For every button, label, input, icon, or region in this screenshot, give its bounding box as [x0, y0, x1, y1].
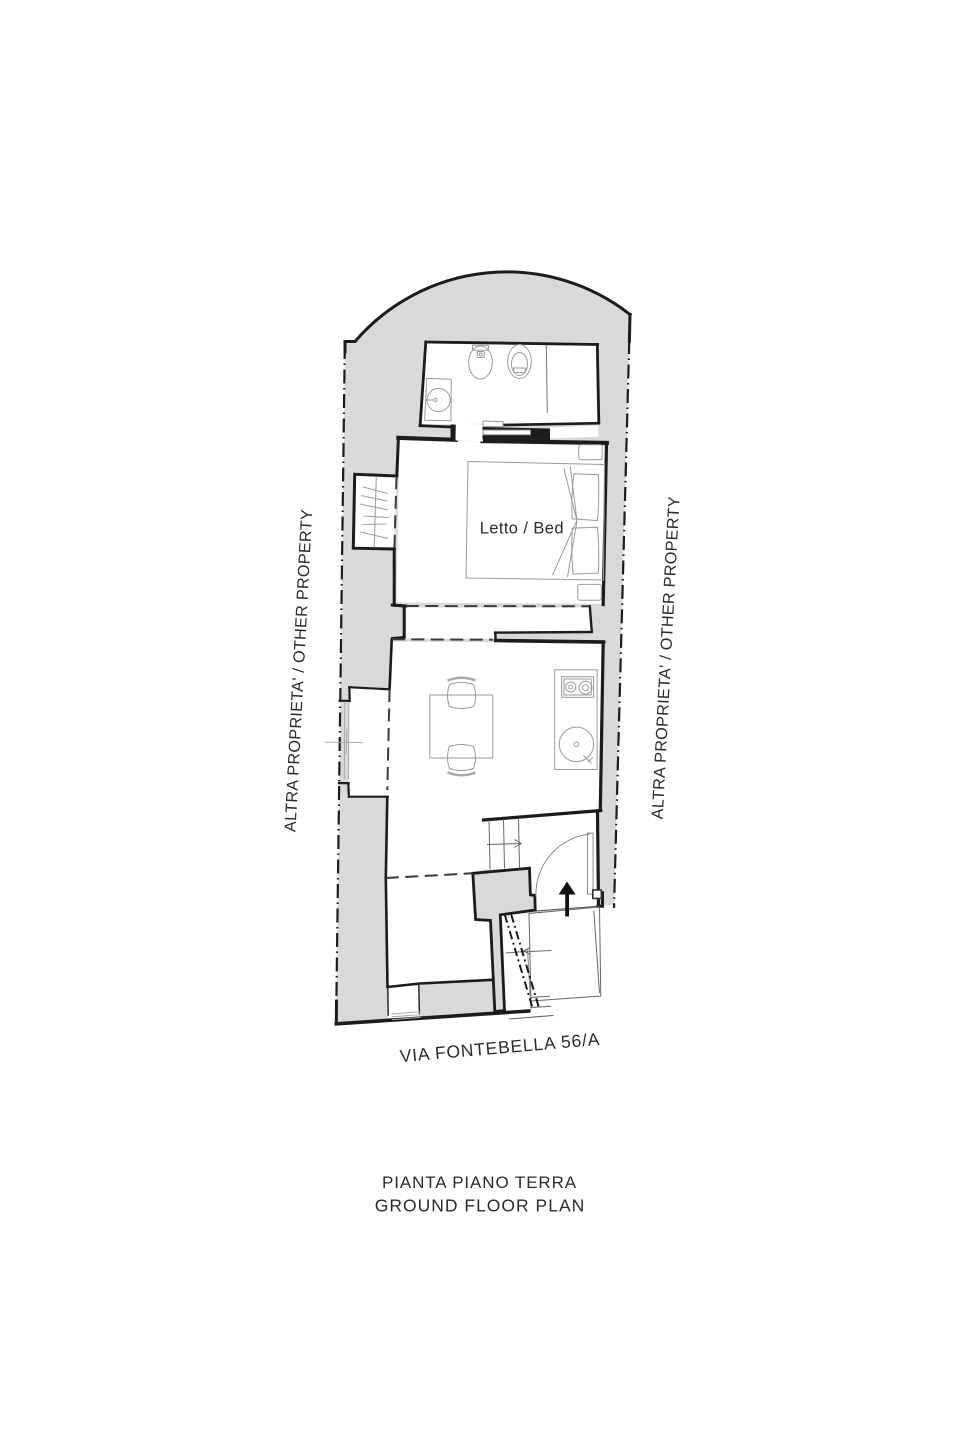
svg-text:PIANTA PIANO TERRA: PIANTA PIANO TERRA: [382, 1173, 577, 1192]
svg-text:VIA FONTEBELLA 56/A: VIA FONTEBELLA 56/A: [399, 1029, 601, 1066]
svg-text:ALTRA PROPRIETA' / OTHER PROPE: ALTRA PROPRIETA' / OTHER PROPERTY: [649, 496, 684, 820]
svg-text:GROUND FLOOR PLAN: GROUND FLOOR PLAN: [375, 1196, 586, 1216]
svg-text:ALTRA PROPRIETA' / OTHER PROPE: ALTRA PROPRIETA' / OTHER PROPERTY: [281, 509, 316, 833]
svg-text:Letto / Bed: Letto / Bed: [480, 520, 564, 538]
